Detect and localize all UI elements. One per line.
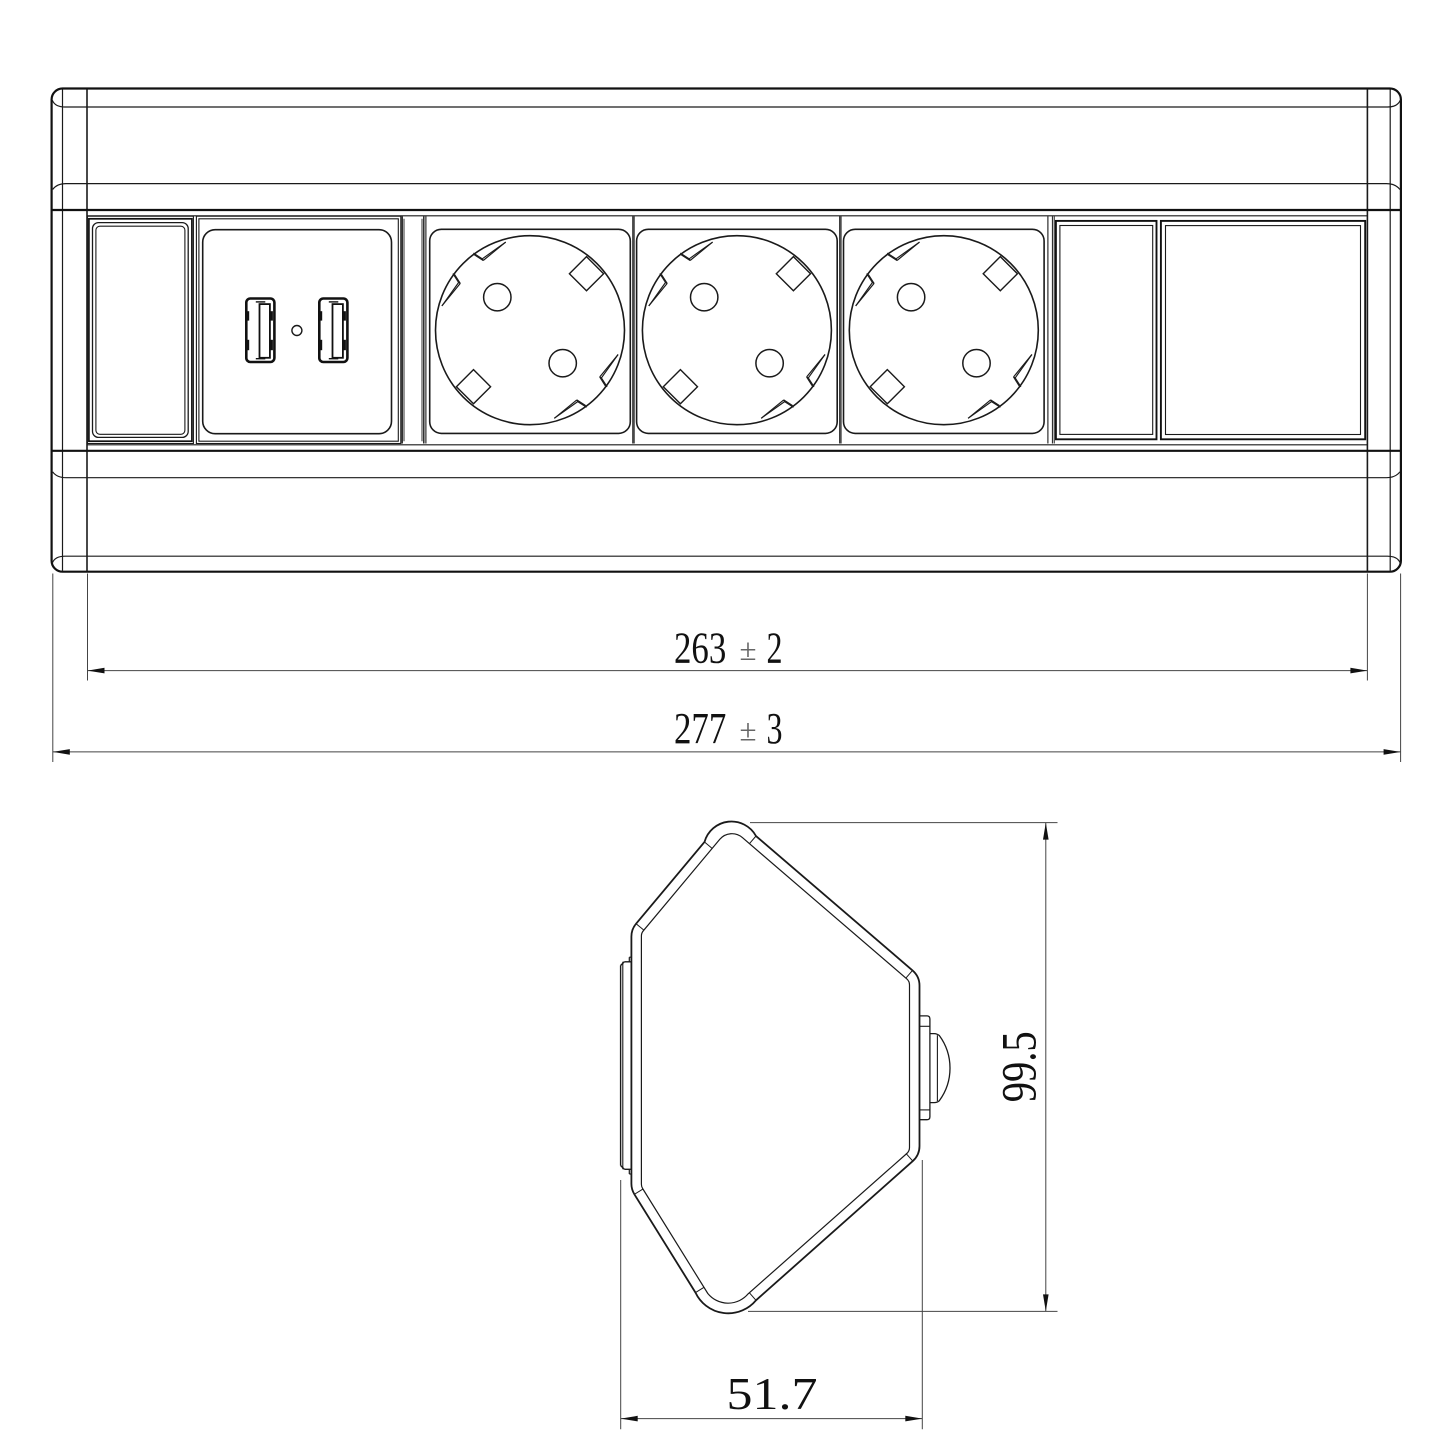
svg-text:99.5: 99.5 xyxy=(990,1031,1046,1102)
svg-text:2: 2 xyxy=(767,624,783,673)
svg-text:3: 3 xyxy=(767,704,783,753)
svg-text:±: ± xyxy=(740,632,757,667)
svg-text:±: ± xyxy=(740,713,757,748)
svg-text:51.7: 51.7 xyxy=(727,1368,818,1419)
svg-text:263: 263 xyxy=(674,624,726,673)
svg-text:277: 277 xyxy=(674,704,726,753)
